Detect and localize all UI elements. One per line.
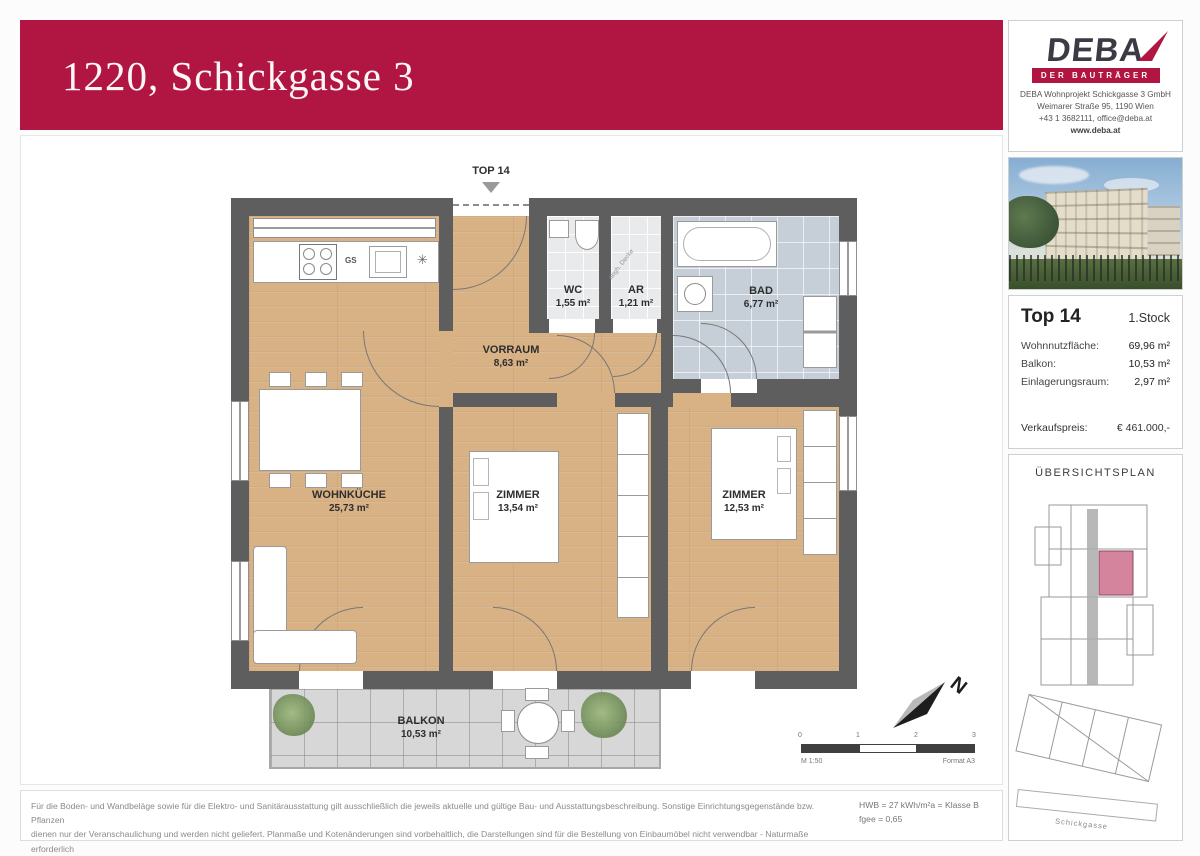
photo-cloud	[1019, 166, 1089, 184]
window-kitchen-top	[253, 218, 436, 238]
page-title: 1220, Schickgasse 3	[20, 20, 1003, 132]
pillow	[777, 436, 791, 462]
brand-company: DEBA Wohnprojekt Schickgasse 3 GmbH	[1009, 89, 1182, 101]
bathtub-basin	[683, 227, 771, 261]
dining-chair	[341, 372, 363, 387]
brand-address: Weimarer Straße 95, 1190 Wien	[1009, 101, 1182, 113]
scale-bar-segment	[917, 744, 975, 753]
balcony-chair	[561, 710, 575, 732]
wardrobe-zimmer1	[617, 413, 649, 618]
window-left-sofa	[231, 561, 249, 641]
room-label-zimmer1: ZIMMER 13,54 m²	[458, 488, 578, 515]
brand-contact: +43 1 3682111, office@deba.at	[1009, 113, 1182, 125]
balcony-table	[517, 702, 559, 744]
window-right-zimmer2	[839, 416, 857, 491]
wall-zimmer1-zimmer2	[651, 407, 668, 671]
dining-chair	[269, 372, 291, 387]
room-label-zimmer2: ZIMMER 12,53 m²	[684, 488, 804, 515]
energy-info: HWB = 27 kWh/m²a = Klasse B fgee = 0,65	[859, 799, 979, 827]
balcony-door-kitchen	[299, 671, 363, 689]
dining-chair	[305, 372, 327, 387]
room-label-balkon: BALKON 10,53 m²	[361, 714, 481, 741]
disclaimer-line2: dienen nur der Veranschaulichung und wer…	[31, 827, 836, 855]
unit-area-label: Wohnnutzfläche:	[1021, 340, 1099, 352]
deba-tagline: DER BAUTRÄGER	[1032, 68, 1160, 83]
room-label-bad: BAD 6,77 m²	[721, 284, 801, 311]
overview-title: ÜBERSICHTSPLAN	[1009, 467, 1182, 479]
energy-fgee: fgee = 0,65	[859, 813, 979, 827]
north-label: N	[946, 673, 971, 699]
dishwasher-label: GS	[345, 256, 357, 265]
scale-format-label: Format A3	[901, 758, 975, 765]
window-right-bad	[839, 241, 857, 296]
window-left-dining	[231, 401, 249, 481]
wall-top-right	[529, 198, 857, 216]
photo-fence	[1009, 255, 1182, 281]
deba-logo-text: DEBA	[1045, 33, 1146, 66]
entrance-marker-icon	[482, 182, 500, 193]
wc-door-opening	[549, 319, 595, 333]
stove-burner	[320, 248, 332, 260]
deba-logo: DEBA	[1047, 33, 1145, 66]
sofa-horizontal	[253, 630, 357, 664]
overview-staircase	[1087, 509, 1098, 685]
building-photo	[1008, 157, 1183, 290]
unit-balcony-row: Balkon: 10,53 m²	[1021, 358, 1170, 370]
scale-tick-0: 0	[798, 732, 802, 739]
entrance-label: TOP 14	[441, 164, 541, 178]
wardrobe-zimmer2	[803, 410, 837, 555]
scale-bar-segment	[859, 744, 917, 753]
stove-burner	[320, 263, 332, 275]
unit-floor: 1.Stock	[1128, 311, 1170, 325]
unit-info-panel: Top 14 1.Stock Wohnnutzfläche: 69,96 m² …	[1008, 295, 1183, 449]
balcony-chair	[525, 688, 549, 701]
brand-website: www.deba.at	[1009, 125, 1182, 137]
wall-vorraum-zimmer	[439, 393, 839, 407]
brand-panel: DEBA DER BAUTRÄGER DEBA Wohnprojekt Schi…	[1008, 20, 1183, 152]
energy-hwb: HWB = 27 kWh/m²a = Klasse B	[859, 799, 979, 813]
photo-building-secondary	[1146, 206, 1180, 256]
dining-chair	[341, 473, 363, 488]
disclaimer-line1: Für die Boden- und Wandbeläge sowie für …	[31, 799, 836, 827]
entrance-door-dashed	[453, 204, 529, 206]
zimmer1-door-opening	[557, 393, 615, 407]
fridge-symbol-icon: ✳	[417, 252, 428, 268]
plant	[273, 694, 315, 736]
scale-label: M 1:50	[801, 758, 822, 765]
kitchen-sink-basin	[375, 251, 401, 273]
north-arrow-icon: N	[879, 664, 979, 744]
overview-panel: ÜBERSICHTSPLAN Schickgasse	[1008, 454, 1183, 841]
scale-tick-3: 3	[972, 732, 976, 739]
stove-burner	[303, 248, 315, 260]
dining-table	[259, 389, 361, 471]
overview-street-label: Schickgasse	[1055, 817, 1109, 832]
room-label-wc: WC 1,55 m²	[547, 283, 599, 310]
wall-kitchen-zimmer1	[439, 407, 453, 671]
dining-chair	[305, 473, 327, 488]
disclaimer-text: Für die Boden- und Wandbeläge sowie für …	[31, 799, 836, 856]
pillow	[473, 458, 489, 486]
wall-vorraum-kitchen	[439, 216, 453, 331]
unit-price-row: Verkaufspreis: € 461.000,-	[1021, 422, 1170, 434]
scale-tick-1: 1	[856, 732, 860, 739]
wall-top-left	[231, 198, 453, 216]
scale-tick-2: 2	[914, 732, 918, 739]
vanity-double	[803, 296, 837, 368]
unit-price-value: € 461.000,-	[1117, 422, 1170, 434]
unit-area-value: 69,96 m²	[1129, 340, 1170, 352]
photo-building	[1045, 188, 1147, 264]
unit-storage-label: Einlagerungsraum:	[1021, 376, 1109, 388]
unit-balcony-label: Balkon:	[1021, 358, 1056, 370]
wall-wc-left	[529, 216, 547, 333]
washing-machine-drum	[684, 283, 706, 305]
zimmer2-door-opening	[673, 393, 731, 407]
overview-highlighted-unit	[1099, 551, 1133, 595]
room-label-ar: AR 1,21 m²	[607, 283, 665, 310]
dining-chair	[269, 473, 291, 488]
ar-door-opening	[613, 319, 657, 333]
room-label-vorraum: VORRAUM 8,63 m²	[451, 343, 571, 370]
floorplan: TOP 14 GS ✳ abgh. Decke	[20, 135, 1003, 785]
unit-balcony-value: 10,53 m²	[1129, 358, 1170, 370]
balcony-chair	[525, 746, 549, 759]
footer-bar: Für die Boden- und Wandbeläge sowie für …	[20, 790, 1003, 841]
toilet	[575, 220, 599, 250]
unit-price-label: Verkaufspreis:	[1021, 422, 1088, 434]
unit-area-row: Wohnnutzfläche: 69,96 m²	[1021, 340, 1170, 352]
unit-name: Top 14	[1021, 306, 1081, 328]
stove-burner	[303, 263, 315, 275]
room-label-wohnkueche: WOHNKÜCHE 25,73 m²	[269, 488, 429, 515]
unit-storage-row: Einlagerungsraum: 2,97 m²	[1021, 376, 1170, 388]
scale-bar-segment	[801, 744, 859, 753]
plant	[581, 692, 627, 738]
balcony-door-zimmer1	[493, 671, 557, 689]
wc-sink	[549, 220, 569, 238]
unit-storage-value: 2,97 m²	[1134, 376, 1170, 388]
title-band: 1220, Schickgasse 3	[20, 20, 1003, 130]
french-window-zimmer2	[691, 671, 755, 689]
balcony-chair	[501, 710, 515, 732]
overview-site-plan: Schickgasse	[1009, 487, 1182, 837]
